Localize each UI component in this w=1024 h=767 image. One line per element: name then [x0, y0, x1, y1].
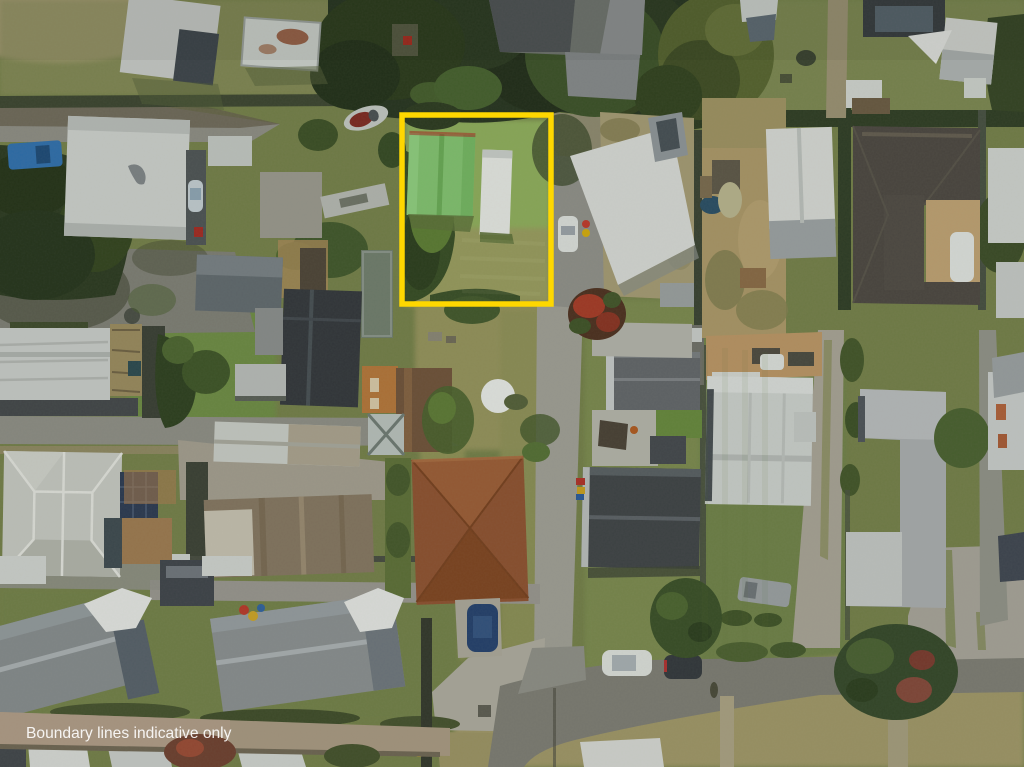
svg-text:Boundary lines indicative only: Boundary lines indicative only: [26, 725, 232, 742]
